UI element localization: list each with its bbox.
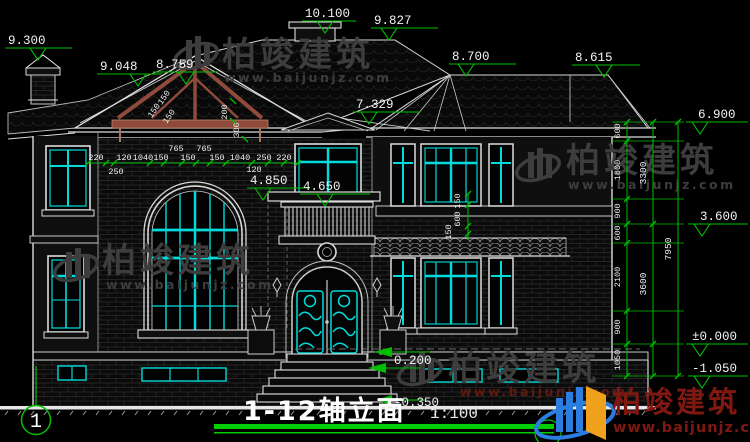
svg-text:0.200: 0.200 [394, 354, 432, 368]
dim-label: 150 [444, 224, 454, 239]
marker-8615: 8.615 [572, 51, 640, 77]
door-knob [325, 320, 329, 324]
dim-label: 150 [453, 193, 463, 208]
watermark-brand: 柏竣建筑 [448, 349, 600, 389]
drawing-title: 1-12轴立面 [243, 395, 406, 427]
svg-text:±0.000: ±0.000 [692, 330, 737, 344]
bay-window-1f-right [485, 258, 517, 334]
svg-text:9.827: 9.827 [374, 14, 412, 28]
dim-label: 7950 [663, 237, 674, 260]
dim-label: 1050 [613, 350, 623, 370]
dim-label: 250 [256, 153, 271, 163]
svg-text:8.615: 8.615 [575, 51, 613, 65]
dim-label: 600 [613, 123, 623, 138]
title-underline-thin [214, 432, 554, 434]
dim-label: 3600 [638, 272, 649, 295]
marker-6900: 6.900 [686, 108, 748, 134]
axis-number: 1 [30, 411, 42, 434]
dim-label: 600 [613, 225, 623, 240]
porthole-window [318, 243, 336, 261]
dim-label: 900 [613, 203, 623, 218]
dim-label: 150 [153, 153, 168, 163]
drawing-scale: 1:100 [430, 405, 478, 423]
svg-text:10.100: 10.100 [305, 7, 350, 21]
dim-label: 150 [180, 153, 195, 163]
dim-label: 600 [453, 211, 463, 226]
dim-label: 150 [209, 153, 224, 163]
logo-bar [576, 387, 583, 432]
svg-text:4.650: 4.650 [303, 180, 341, 194]
svg-text:7.329: 7.329 [356, 98, 394, 112]
dim-label: 250 [108, 167, 123, 177]
svg-text:8.759: 8.759 [156, 58, 194, 72]
cad-canvas: 柏竣建筑 www.baijunjz.com 柏竣建筑 www.baijunjz.… [0, 0, 750, 442]
svg-text:9.048: 9.048 [100, 60, 138, 74]
marker-3600: 3.600 [688, 210, 748, 236]
brand-url: www.baijunjz.com [613, 420, 750, 436]
watermark-brand: 柏竣建筑 [222, 35, 374, 75]
svg-text:4.850: 4.850 [250, 174, 288, 188]
watermark-url: www.baijunjz.com [568, 177, 736, 192]
marker-9827: 9.827 [371, 14, 438, 40]
svg-text:8.700: 8.700 [452, 50, 490, 64]
svg-text:6.900: 6.900 [698, 108, 736, 122]
dim-label: 300 [232, 122, 242, 137]
dim-label: 120 [116, 153, 131, 163]
dim-label: 220 [276, 153, 291, 163]
dim-label: 1040 [133, 153, 153, 163]
marker-9300: 9.300 [5, 34, 72, 60]
watermark-url: www.baijunjz.com [106, 277, 274, 292]
dim-label: 900 [613, 319, 623, 334]
marker-8700: 8.700 [449, 50, 516, 76]
logo-building [586, 386, 606, 440]
bay-window-2f-center [421, 144, 481, 206]
floor-band-right [376, 206, 612, 216]
dim-label: 1040 [230, 153, 250, 163]
svg-text:9.300: 9.300 [8, 34, 46, 48]
dim-label: 1800 [613, 160, 623, 180]
dim-label: 2100 [613, 267, 623, 287]
brand-name: 柏竣建筑 [612, 385, 740, 419]
chimney-left [26, 55, 60, 104]
svg-text:-1.050: -1.050 [692, 362, 737, 376]
marker-0000: ±0.000 [686, 330, 748, 356]
awning-roof [370, 238, 570, 256]
bay-window-1f-center [417, 258, 485, 334]
logo-bar [566, 392, 573, 432]
window-left-2f [42, 146, 94, 216]
logo-bar [556, 398, 563, 432]
bay-window-2f-left [391, 144, 415, 206]
dim-label: 220 [88, 153, 103, 163]
bay-window-2f-right [489, 144, 513, 206]
floor-band-left [30, 236, 98, 243]
svg-text:3.600: 3.600 [700, 210, 738, 224]
dim-label: 200 [220, 104, 230, 119]
watermark-brand: 柏竣建筑 [102, 241, 254, 281]
watermark-url: www.baijunjz.com [224, 70, 392, 85]
elevation-drawing: 柏竣建筑 www.baijunjz.com 柏竣建筑 www.baijunjz.… [0, 0, 750, 442]
title-underline-thick [214, 424, 554, 429]
dim-label: 3300 [638, 161, 649, 184]
